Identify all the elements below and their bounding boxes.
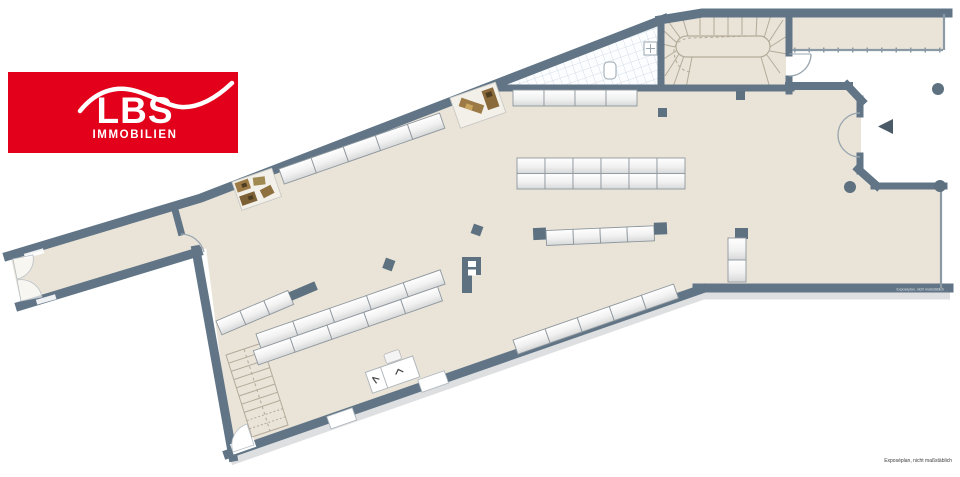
- shelf-unit: [728, 238, 746, 260]
- shelf-endcap: [735, 228, 748, 239]
- shelf-unit: [601, 158, 629, 174]
- shelf-endcap: [533, 228, 547, 241]
- shelf-grid-center: [517, 158, 685, 189]
- logo-text: LBS IMMOBILIEN: [20, 94, 250, 141]
- column: [658, 108, 667, 117]
- shelf-unit: [517, 174, 545, 190]
- floorplan-image: Exposéplan, nicht maßstäblich Exposéplan…: [0, 0, 960, 477]
- duct-panel: [468, 261, 476, 267]
- shelf-endcap: [654, 222, 668, 235]
- logo-subtitle: IMMOBILIEN: [20, 129, 250, 141]
- shelf-unit: [546, 229, 574, 245]
- shelf-unit: [544, 90, 575, 106]
- shelf-unit: [657, 158, 685, 174]
- shelf-unit: [601, 174, 629, 190]
- shelf-unit: [545, 174, 573, 190]
- disclaimer-text: Exposéplan, nicht maßstäblich: [884, 458, 952, 464]
- shelf-unit: [629, 174, 657, 190]
- shelf-unit: [657, 174, 685, 190]
- shelf-unit: [573, 228, 601, 244]
- column: [736, 91, 745, 100]
- shelf-unit: [513, 90, 544, 106]
- shelf-unit: [600, 227, 628, 243]
- post: [932, 83, 944, 95]
- door-arc: [789, 54, 811, 76]
- wall-watermark: Exposéplan, nicht maßstäblich: [897, 288, 945, 292]
- shelf-unit: [728, 260, 746, 282]
- shelf-unit: [573, 174, 601, 190]
- shelf-unit: [575, 90, 606, 106]
- shelf-unit: [545, 158, 573, 174]
- duct-panel: [468, 270, 476, 276]
- logo-brand: LBS: [20, 94, 250, 128]
- main-hall-floor: [200, 89, 941, 452]
- shelf-unit: [629, 158, 657, 174]
- entrance-arrow-icon: [878, 119, 893, 134]
- post: [844, 181, 856, 193]
- shelf-unit: [517, 158, 545, 174]
- shelf-row-under-wc: [513, 90, 637, 106]
- desk: [253, 176, 266, 185]
- post: [934, 180, 946, 192]
- shelf-unit: [573, 158, 601, 174]
- shelf-unit: [627, 226, 655, 242]
- shelf-unit: [606, 90, 637, 106]
- upper-room-floor: [792, 16, 943, 49]
- lbs-logo: LBS IMMOBILIEN: [8, 72, 238, 153]
- stair-handrail: [676, 36, 770, 57]
- toilet-icon: [604, 62, 616, 79]
